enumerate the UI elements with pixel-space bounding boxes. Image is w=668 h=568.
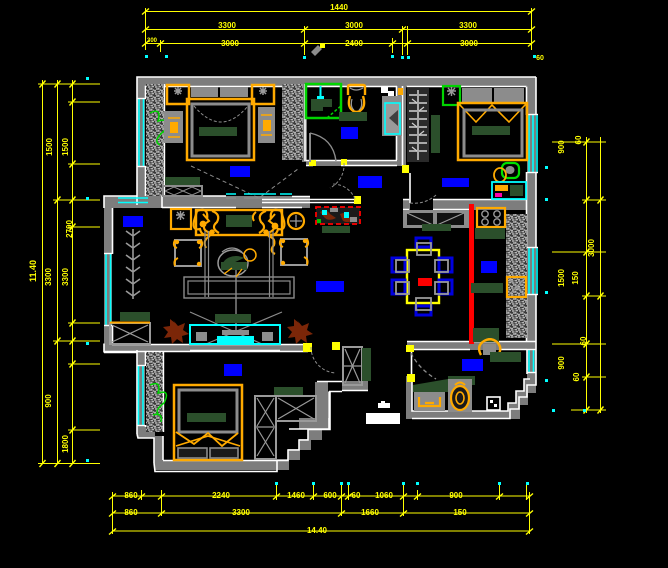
svg-text:1440: 1440 — [330, 3, 348, 12]
svg-text:860: 860 — [124, 491, 138, 500]
svg-text:150: 150 — [571, 271, 580, 285]
svg-text:60: 60 — [536, 55, 544, 62]
svg-text:3000: 3000 — [587, 239, 596, 257]
svg-text:11.40: 11.40 — [28, 260, 38, 282]
svg-text:1800: 1800 — [61, 435, 70, 453]
svg-text:2700: 2700 — [65, 220, 74, 238]
svg-text:1500: 1500 — [557, 269, 566, 287]
svg-text:600: 600 — [323, 491, 337, 500]
svg-text:1660: 1660 — [361, 508, 379, 517]
svg-text:3300: 3300 — [61, 268, 70, 286]
svg-text:1500: 1500 — [61, 138, 70, 156]
svg-text:860: 860 — [124, 508, 138, 517]
svg-text:1500: 1500 — [45, 138, 54, 156]
svg-text:3300: 3300 — [44, 268, 53, 286]
svg-text:3000: 3000 — [460, 39, 478, 48]
svg-text:60: 60 — [574, 135, 583, 144]
svg-text:60: 60 — [352, 491, 361, 500]
svg-text:1460: 1460 — [287, 491, 305, 500]
svg-text:150: 150 — [453, 508, 467, 517]
svg-text:1060: 1060 — [375, 491, 393, 500]
svg-text:900: 900 — [449, 491, 463, 500]
svg-text:3000: 3000 — [345, 21, 363, 30]
svg-text:60: 60 — [572, 372, 581, 381]
svg-text:3300: 3300 — [232, 508, 250, 517]
svg-text:900: 900 — [557, 356, 566, 370]
svg-text:900: 900 — [44, 394, 53, 408]
svg-text:900: 900 — [557, 140, 566, 154]
svg-text:2240: 2240 — [212, 491, 230, 500]
svg-text:3000: 3000 — [221, 39, 239, 48]
svg-text:60: 60 — [579, 336, 588, 345]
svg-text:3300: 3300 — [459, 21, 477, 30]
svg-text:14.40: 14.40 — [307, 526, 328, 535]
svg-text:300: 300 — [147, 38, 158, 44]
svg-text:2400: 2400 — [345, 39, 363, 48]
svg-text:3300: 3300 — [218, 21, 236, 30]
